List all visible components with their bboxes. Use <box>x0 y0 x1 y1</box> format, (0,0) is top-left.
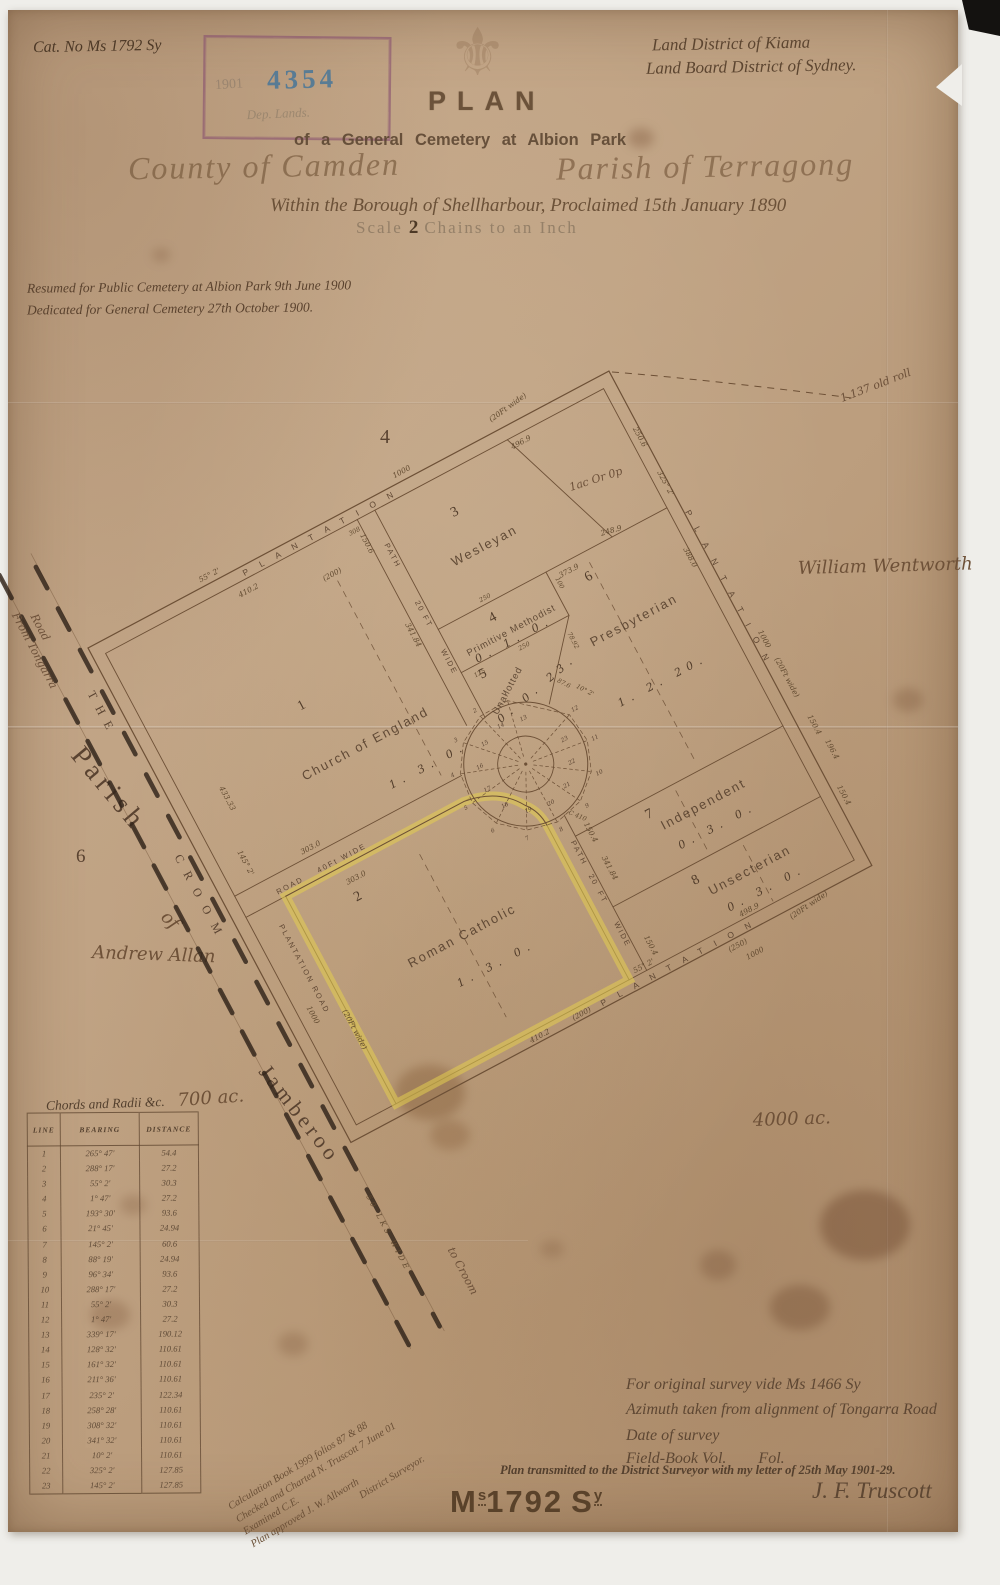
table-row: 1155° 2'30.3 <box>28 1296 199 1312</box>
stamp-s-sup: s <box>478 1487 486 1506</box>
table-cell: 19 <box>29 1418 62 1433</box>
table-cell: 288° 17' <box>61 1282 140 1298</box>
column-header-bearing: BEARING <box>60 1112 139 1146</box>
table-row: 2110° 2'110.61 <box>30 1447 201 1463</box>
plot-6-name: Presbyterian <box>587 591 680 650</box>
se-length: 1000 <box>744 945 765 962</box>
table-cell: 339° 17' <box>62 1327 141 1343</box>
date-of-survey-note: Date of survey <box>626 1427 719 1445</box>
road-303a: 303.0 <box>299 838 322 856</box>
table-cell: 30.3 <box>140 1176 199 1192</box>
scanned-survey-plan: Cat. No Ms 1792 Sy 1901 4354 Dep. Lands.… <box>0 0 1000 1585</box>
table-row: 1265° 47'54.4 <box>27 1145 198 1162</box>
adjoining-owner-east: William Wentworth <box>798 553 973 579</box>
table-cell: 10 <box>28 1282 61 1297</box>
area-label-south: 4000 ac. <box>751 1107 831 1131</box>
ne-bearing: 325° 2' <box>655 469 676 497</box>
circle-point-number: 6 <box>490 828 496 835</box>
table-cell: 145° 2' <box>63 1478 142 1494</box>
lpath-word2: 20 <box>587 872 601 887</box>
table-row: 16211° 36'110.61 <box>29 1372 200 1388</box>
upath-length: 341.84 <box>403 621 423 649</box>
table-cell: 265° 47' <box>60 1145 139 1161</box>
table-cell: 211° 36' <box>62 1372 141 1388</box>
table-cell: 54.4 <box>139 1145 198 1161</box>
lpath-length: 341.84 <box>600 854 620 882</box>
se-width: (20Ft wide) <box>788 889 830 921</box>
plot-boundaries <box>106 389 855 1125</box>
table-cell: 23 <box>30 1478 63 1494</box>
dim-p5d: 10° 2' <box>575 683 595 698</box>
circle-point-number: 12 <box>571 705 581 714</box>
table-cell: 16 <box>29 1373 62 1388</box>
table-cell: 27.2 <box>140 1281 199 1297</box>
table-cell: 325° 2' <box>63 1463 142 1479</box>
table-cell: 60.6 <box>140 1236 199 1252</box>
ne-1504a: 150.4 <box>806 713 824 736</box>
table-cell: 27.2 <box>140 1161 199 1177</box>
plot-2-area: 1. 3. 0. <box>455 938 537 990</box>
ne-1964: 196.4 <box>823 738 841 761</box>
table-cell: 1° 47' <box>62 1312 141 1328</box>
table-cell: 15 <box>29 1358 62 1373</box>
table-row: 621° 45'24.94 <box>28 1221 199 1237</box>
table-cell: 27.2 <box>141 1311 200 1327</box>
table-cell: 2 <box>28 1161 61 1176</box>
table-row: 10288° 17'27.2 <box>28 1281 199 1297</box>
table-cell: 22 <box>30 1463 63 1478</box>
table-row: 121° 47'27.2 <box>29 1311 200 1327</box>
table-row: 22325° 2'127.85 <box>30 1462 201 1478</box>
table-cell: 127.85 <box>142 1477 201 1493</box>
table-row: 19308° 32'110.61 <box>29 1417 200 1433</box>
inner-plantation-boundary <box>106 389 855 1125</box>
table-cell: 161° 32' <box>62 1357 141 1373</box>
table-cell: 127.85 <box>142 1462 201 1478</box>
circle-point-number: 23 <box>559 735 569 744</box>
lpath-word1: PATH <box>569 839 590 867</box>
stamp-y-sup: y <box>594 1487 602 1506</box>
dim-p4a: 250 <box>477 592 492 604</box>
table-row: 13339° 17'190.12 <box>29 1327 200 1343</box>
plot-6-area: 1. 2. 20. <box>616 651 710 709</box>
nw-plantation-label: PLANTATION <box>241 484 406 578</box>
table-cell: 1° 47' <box>61 1191 140 1207</box>
upath-word3: WIDE <box>439 648 460 677</box>
table-row: 7145° 2'60.6 <box>28 1236 199 1252</box>
ne-1504b: 150.4 <box>835 783 853 806</box>
table-cell: 288° 17' <box>61 1161 140 1177</box>
circle-point-number: 2 <box>471 708 478 716</box>
circle-radial-line <box>460 748 517 791</box>
stamp-s: S <box>563 1484 594 1519</box>
table-cell: 3 <box>28 1177 61 1192</box>
nw-inner-length: 496.9 <box>508 433 532 452</box>
table-cell: 190.12 <box>141 1327 200 1343</box>
plot-1-area: 1. 3. 0. <box>387 740 469 792</box>
circle-point-number: 7 <box>524 835 530 842</box>
area-label-west: 700 ac. <box>177 1085 245 1111</box>
table-cell: 1 <box>27 1146 60 1162</box>
boundary-extension-line <box>612 372 852 398</box>
table-cell: 20 <box>29 1433 62 1448</box>
unnumbered-area-label: 1ac Or 0p <box>568 464 624 493</box>
table-row: 15161° 32'110.61 <box>29 1357 200 1373</box>
plot-3-name: Wesleyan <box>449 522 520 569</box>
table-cell: 17 <box>29 1388 62 1403</box>
table-row: 17235° 2'122.34 <box>29 1387 200 1403</box>
plot-1-note: (200) <box>321 566 343 583</box>
transmitted-note: Plan transmitted to the District Surveyo… <box>500 1463 896 1478</box>
table-cell: 96° 34' <box>61 1267 140 1283</box>
sw-length: 1000 <box>305 1004 322 1025</box>
circle-point-number: 10 <box>595 769 605 778</box>
lpath-word3: FT <box>596 889 610 905</box>
table-cell: 5 <box>28 1207 61 1222</box>
dim-p5c: 87.6 <box>556 677 572 690</box>
plot-3-number: 3 <box>448 504 461 521</box>
nw-width: (20Ft wide) <box>487 391 528 424</box>
table-cell: 21 <box>30 1448 63 1463</box>
adjoining-parish-label: Parish <box>65 741 153 838</box>
circle-point-number: 20 <box>546 799 556 808</box>
plot-8-number: 8 <box>689 872 702 889</box>
circle-point-number: 11 <box>591 734 600 743</box>
table-cell: 24.94 <box>140 1251 199 1267</box>
road-303b: 303.0 <box>344 868 367 886</box>
sw-bearing: 145° 2' <box>235 849 256 877</box>
table-header-row: LINE BEARING DISTANCE <box>27 1112 198 1146</box>
upath-word1: PATH <box>382 542 403 570</box>
table-row: 14128° 32'110.61 <box>29 1342 200 1358</box>
column-header-distance: DISTANCE <box>139 1112 198 1145</box>
adjoining-parish-portion: 6 <box>76 846 86 867</box>
upath-word2: 20 FT <box>413 599 435 629</box>
table-cell: 110.61 <box>141 1342 200 1358</box>
ne-3880: 388.0 <box>681 546 699 569</box>
portion-number-4: 4 <box>380 426 390 448</box>
table-cell: 7 <box>28 1237 61 1252</box>
circle-point-number: 15 <box>481 740 491 749</box>
table-cell: 10° 2' <box>63 1448 142 1464</box>
table-cell: 258° 28' <box>62 1402 141 1418</box>
azimuth-note: Azimuth taken from alignment of Tongarra… <box>626 1401 937 1419</box>
table-cell: 88° 19' <box>61 1251 140 1267</box>
original-survey-note: For original survey vide Ms 1466 Sy <box>626 1376 861 1394</box>
sw-433: 433.33 <box>217 784 238 812</box>
table-cell: 8 <box>28 1252 61 1267</box>
circle-point-number: 16 <box>476 763 486 772</box>
table-cell: 11 <box>28 1297 61 1312</box>
nw-plot1-length: 410.2 <box>236 581 260 600</box>
table-cell: 4 <box>28 1192 61 1207</box>
table-cell: 21° 45' <box>61 1221 140 1237</box>
column-header-line: LINE <box>27 1113 60 1146</box>
table-row: 996° 34'93.6 <box>28 1266 199 1282</box>
table-cell: 12 <box>29 1312 62 1327</box>
table-row: 23145° 2'127.85 <box>30 1477 201 1494</box>
table-cell: 55° 2' <box>61 1176 140 1192</box>
plot-4-number: 4 <box>486 610 499 627</box>
table-row: 355° 2'30.3 <box>28 1176 199 1192</box>
sw-width: (20Ft wide) <box>340 1008 369 1051</box>
table-cell: 122.34 <box>141 1387 200 1403</box>
circle-point-number: 8 <box>558 826 564 833</box>
table-cell: 128° 32' <box>62 1342 141 1358</box>
table-cell: 308° 32' <box>62 1417 141 1433</box>
table-row: 888° 19'24.94 <box>28 1251 199 1267</box>
table-cell: 93.6 <box>140 1266 199 1282</box>
table-cell: 55° 2' <box>61 1297 140 1313</box>
dim-p5b: 78.92 <box>565 631 580 650</box>
table-row: 2288° 17'27.2 <box>28 1161 199 1177</box>
circle-point-number: 9 <box>585 803 591 810</box>
table-cell: 145° 2' <box>61 1236 140 1252</box>
plot-1-number: 1 <box>295 698 308 715</box>
table-cell: 110.61 <box>141 1417 200 1433</box>
circle-radial-line <box>463 724 518 780</box>
table-row: 20341° 32'110.61 <box>29 1432 200 1448</box>
circle-point-number: 5 <box>463 805 469 812</box>
table-cell: 27.2 <box>140 1191 199 1207</box>
lpath-c410: C 410 <box>567 809 587 823</box>
circle-point-number: 22 <box>567 758 577 767</box>
table-cell: 341° 32' <box>62 1433 141 1449</box>
table-cell: 110.61 <box>141 1432 200 1448</box>
ne-plantation-label: PLANTATION <box>683 508 777 673</box>
surveyor-signature: J. F. Truscott <box>812 1478 932 1504</box>
road-to-label: to Croom <box>445 1245 481 1297</box>
stamp-num: 1792 <box>486 1484 563 1519</box>
table-row: 41° 47'27.2 <box>28 1191 199 1207</box>
circle-center <box>524 762 528 766</box>
table-cell: 110.61 <box>141 1372 200 1388</box>
table-cell: 18 <box>29 1403 62 1418</box>
plot-7-name: Independent <box>658 775 748 833</box>
upath-1506: 150.6 <box>358 532 376 555</box>
table-cell: 14 <box>29 1343 62 1358</box>
circle-point-number: 13 <box>519 715 529 724</box>
table-cell: 193° 30' <box>61 1206 140 1222</box>
table-cell: 93.6 <box>140 1206 199 1222</box>
table-cell: 6 <box>28 1222 61 1237</box>
plot-7-number: 7 <box>643 806 656 823</box>
road-width-label: 50 LKS WIDE <box>364 1193 412 1272</box>
stamp-m: M <box>450 1484 478 1519</box>
table-cell: 110.61 <box>141 1402 200 1418</box>
outer-boundary <box>88 371 872 1142</box>
table-cell: 235° 2' <box>62 1387 141 1403</box>
chords-and-radii-table: LINE BEARING DISTANCE 1265° 47'54.42288°… <box>27 1111 202 1494</box>
table-cell: 9 <box>28 1267 61 1282</box>
table-cell: 24.94 <box>140 1221 199 1237</box>
table-cell: 110.61 <box>141 1357 200 1373</box>
plot-6-number: 6 <box>582 569 595 586</box>
table-cell: 110.61 <box>142 1447 201 1463</box>
ne-width: (20Ft wide) <box>773 656 802 699</box>
ms-number-stamp: Ms1792Sy <box>450 1484 602 1520</box>
table-row: 5193° 30'93.6 <box>28 1206 199 1222</box>
table-cell: 13 <box>29 1327 62 1342</box>
nw-bearing: 55° 2' <box>197 566 221 585</box>
plot-2-number: 2 <box>351 889 364 906</box>
table-cell: 30.3 <box>140 1296 199 1312</box>
old-roll-note: 1.137 old roll <box>838 366 913 405</box>
table-row: 18258° 28'110.61 <box>29 1402 200 1418</box>
lpath-1504b: 150.4 <box>642 934 660 957</box>
